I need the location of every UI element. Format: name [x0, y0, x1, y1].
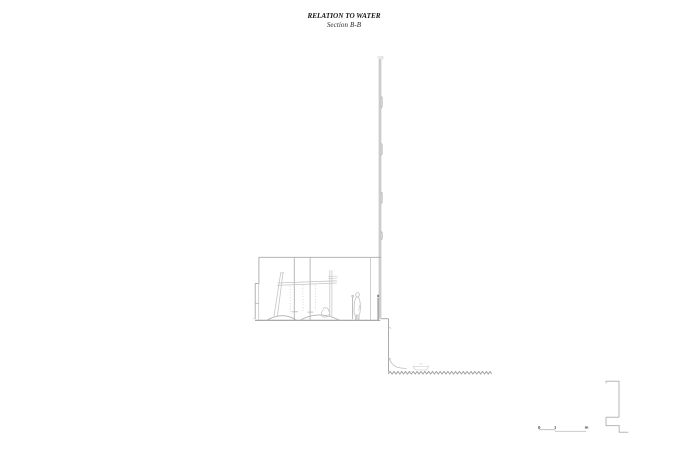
svg-text:m: m: [585, 425, 589, 430]
svg-text:0: 0: [538, 425, 541, 430]
svg-text:1: 1: [554, 425, 557, 430]
